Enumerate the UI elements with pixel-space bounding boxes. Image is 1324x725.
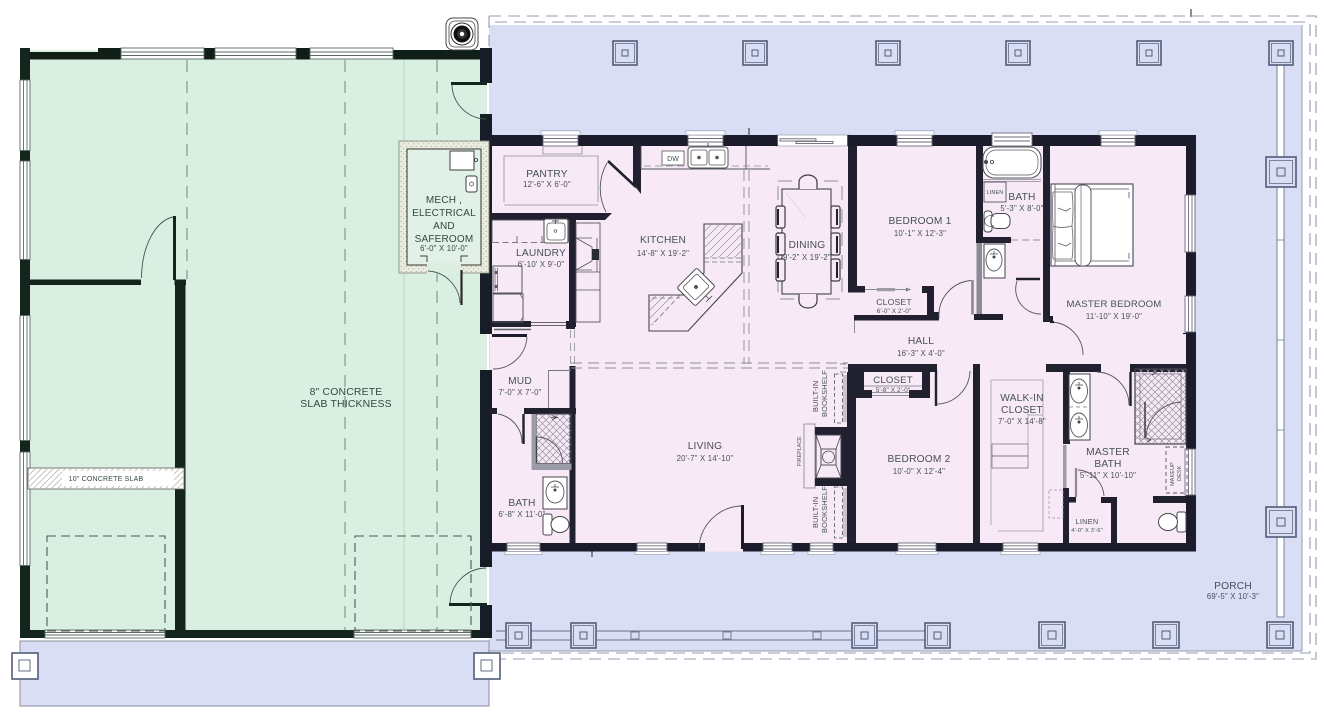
svg-text:6'-8" X 11'-0": 6'-8" X 11'-0" [498, 510, 545, 519]
svg-text:BOOKSHELF: BOOKSHELF [820, 486, 829, 533]
svg-text:HALL: HALL [908, 336, 934, 347]
svg-text:4'-0" X 3'-6": 4'-0" X 3'-6" [1071, 528, 1102, 534]
svg-text:BEDROOM 1: BEDROOM 1 [889, 216, 952, 227]
svg-text:5'-11" X 10'-10": 5'-11" X 10'-10" [1080, 471, 1136, 480]
svg-text:7'-0" X 14'-8": 7'-0" X 14'-8" [998, 417, 1046, 426]
svg-text:DINING: DINING [789, 240, 826, 251]
svg-text:CLOSET: CLOSET [1001, 405, 1043, 416]
svg-text:10" CONCRETE SLAB: 10" CONCRETE SLAB [69, 476, 144, 483]
svg-text:5'-8" X 2'-0": 5'-8" X 2'-0" [876, 387, 911, 394]
svg-text:MECH ,: MECH , [426, 195, 462, 206]
svg-text:11'-10" X 19'-0": 11'-10" X 19'-0" [1086, 312, 1142, 321]
svg-text:6'-0" X 2'-0": 6'-0" X 2'-0" [877, 308, 912, 315]
svg-text:14'-8" X 19'-2": 14'-8" X 19'-2" [637, 249, 689, 258]
svg-text:7'-0" X 7'-0": 7'-0" X 7'-0" [498, 388, 541, 397]
svg-text:BATH: BATH [1094, 459, 1121, 470]
svg-text:LAUNDRY: LAUNDRY [516, 248, 566, 259]
svg-text:CLOSET: CLOSET [876, 297, 912, 307]
svg-text:BATH: BATH [508, 498, 535, 509]
svg-text:10'-1" X 12'-3": 10'-1" X 12'-3" [894, 229, 946, 238]
svg-text:DESK: DESK [1177, 465, 1183, 481]
svg-text:BOOKSHELF: BOOKSHELF [820, 370, 829, 417]
svg-text:10'-0" X 12'-4": 10'-0" X 12'-4" [893, 467, 945, 476]
svg-text:KITCHEN: KITCHEN [640, 235, 686, 246]
svg-text:LINEN: LINEN [1076, 517, 1099, 526]
svg-text:MUD: MUD [508, 376, 532, 387]
svg-text:BEDROOM 2: BEDROOM 2 [888, 454, 951, 465]
svg-text:20'-7" X 14'-10": 20'-7" X 14'-10" [677, 454, 734, 463]
svg-text:LIVING: LIVING [688, 441, 723, 452]
svg-text:WALK-IN: WALK-IN [1000, 393, 1043, 404]
svg-text:9'-2" X 19'-2": 9'-2" X 19'-2" [783, 253, 831, 262]
svg-text:LINEN: LINEN [987, 190, 1004, 196]
svg-text:16'-3" X 4'-0": 16'-3" X 4'-0" [897, 349, 945, 358]
svg-text:DW: DW [667, 156, 679, 163]
svg-text:6'-10' X 9'-0": 6'-10' X 9'-0" [518, 260, 564, 269]
svg-text:BATH: BATH [1008, 192, 1035, 203]
svg-text:8" CONCRETE: 8" CONCRETE [310, 387, 383, 398]
svg-text:AND: AND [433, 221, 455, 232]
svg-text:PORCH: PORCH [1214, 581, 1252, 592]
svg-text:MAKEUP: MAKEUP [1170, 462, 1176, 486]
svg-text:PANTRY: PANTRY [526, 169, 568, 180]
svg-text:MASTER: MASTER [1086, 447, 1130, 458]
svg-text:SLAB THICKNESS: SLAB THICKNESS [300, 399, 392, 410]
svg-text:MASTER BEDROOM: MASTER BEDROOM [1066, 299, 1161, 310]
svg-text:12'-6" X 6'-0": 12'-6" X 6'-0" [523, 180, 571, 189]
svg-text:FIREPLACE: FIREPLACE [797, 436, 803, 466]
svg-text:6'-0" X 10'-0": 6'-0" X 10'-0" [420, 244, 468, 253]
svg-text:CLOSET: CLOSET [873, 375, 913, 386]
svg-text:BUILT-IN: BUILT-IN [811, 497, 820, 528]
svg-text:BUILT-IN: BUILT-IN [811, 381, 820, 412]
svg-text:69'-5" X 10'-3": 69'-5" X 10'-3" [1207, 592, 1259, 601]
svg-text:5'-3" X 8'-0": 5'-3" X 8'-0" [1000, 204, 1043, 213]
svg-text:ELECTRICAL: ELECTRICAL [412, 208, 476, 219]
